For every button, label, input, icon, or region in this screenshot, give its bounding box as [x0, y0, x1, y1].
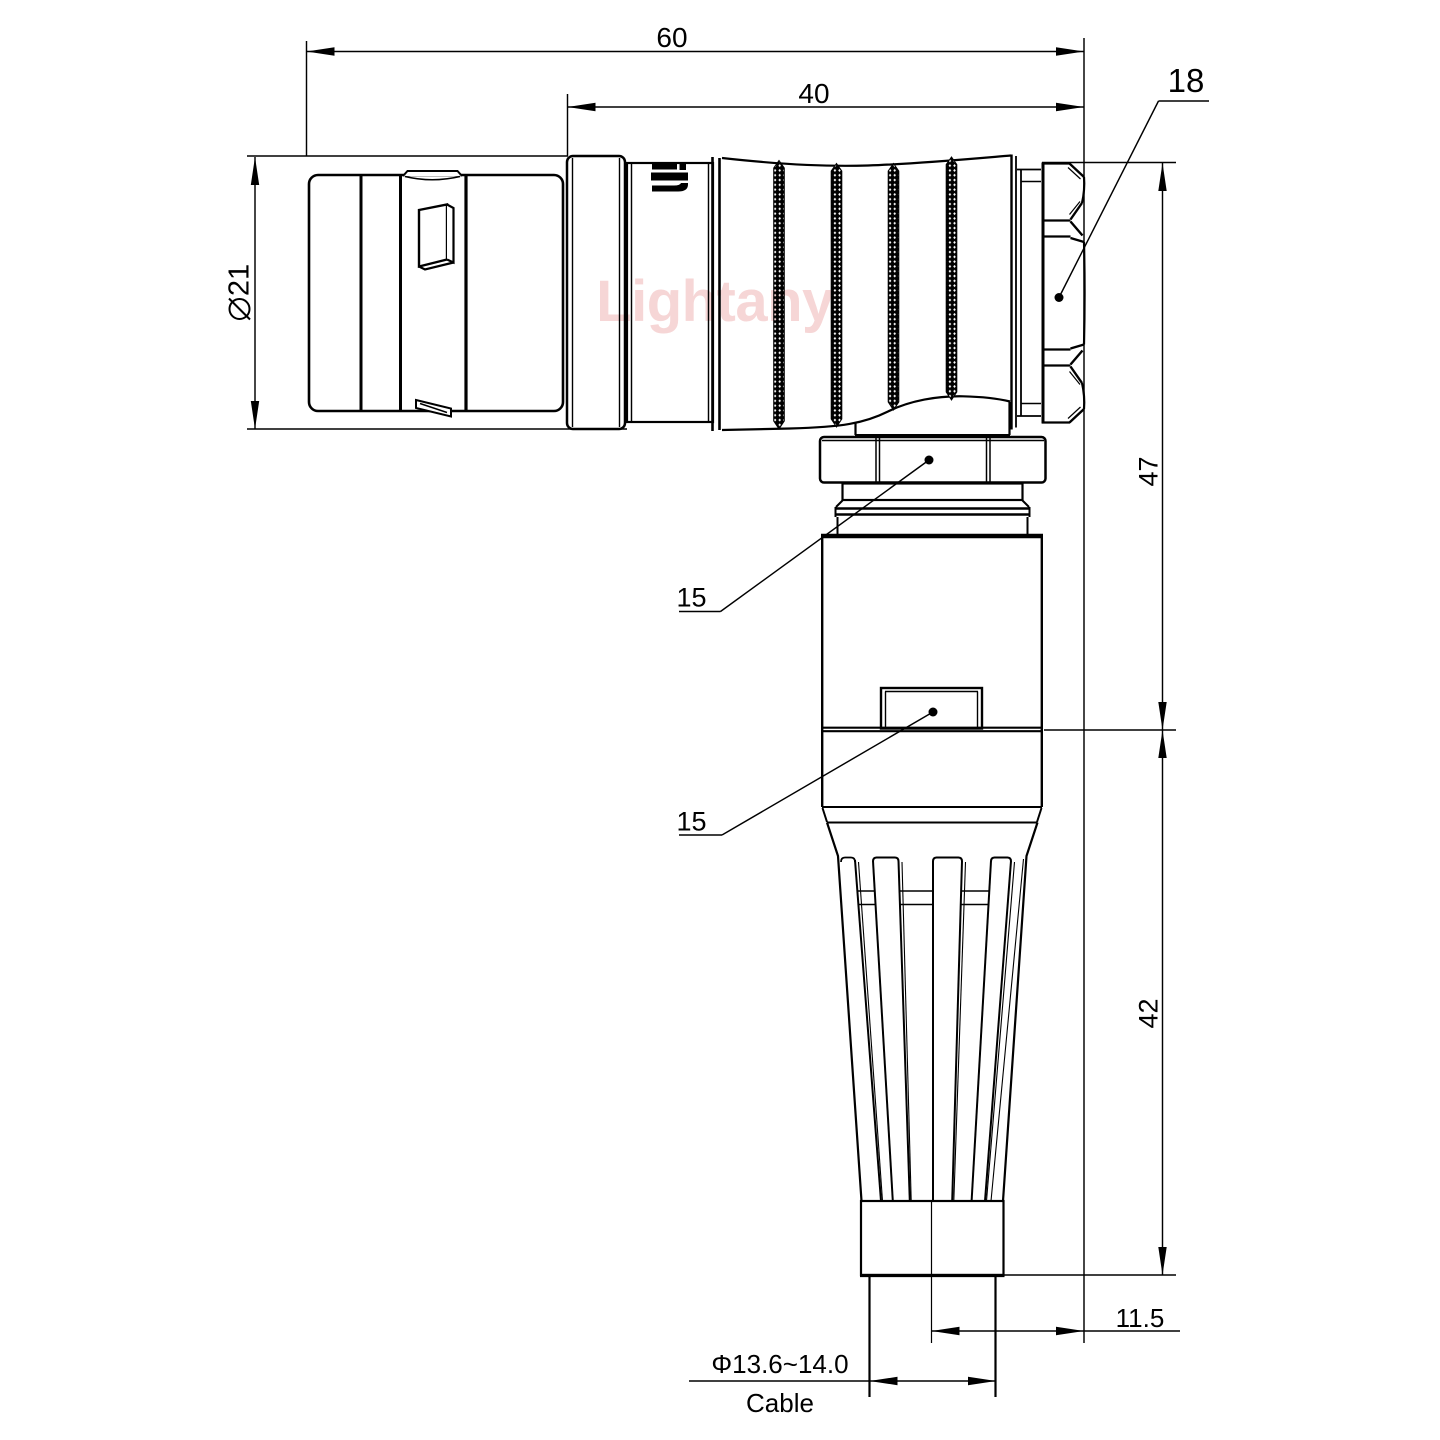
svg-text:42: 42	[1134, 998, 1164, 1028]
svg-text:Φ13.6~14.0: Φ13.6~14.0	[711, 1349, 848, 1379]
svg-text:Lightany: Lightany	[596, 269, 834, 334]
svg-text:18: 18	[1168, 62, 1205, 99]
svg-text:40: 40	[798, 78, 829, 109]
svg-text:11.5: 11.5	[1116, 1303, 1165, 1333]
svg-text:60: 60	[656, 22, 687, 53]
svg-text:Cable: Cable	[746, 1388, 814, 1418]
svg-text:15: 15	[676, 807, 706, 837]
svg-text:15: 15	[676, 583, 706, 613]
svg-text:21: 21	[224, 264, 256, 296]
svg-text:47: 47	[1134, 456, 1164, 486]
